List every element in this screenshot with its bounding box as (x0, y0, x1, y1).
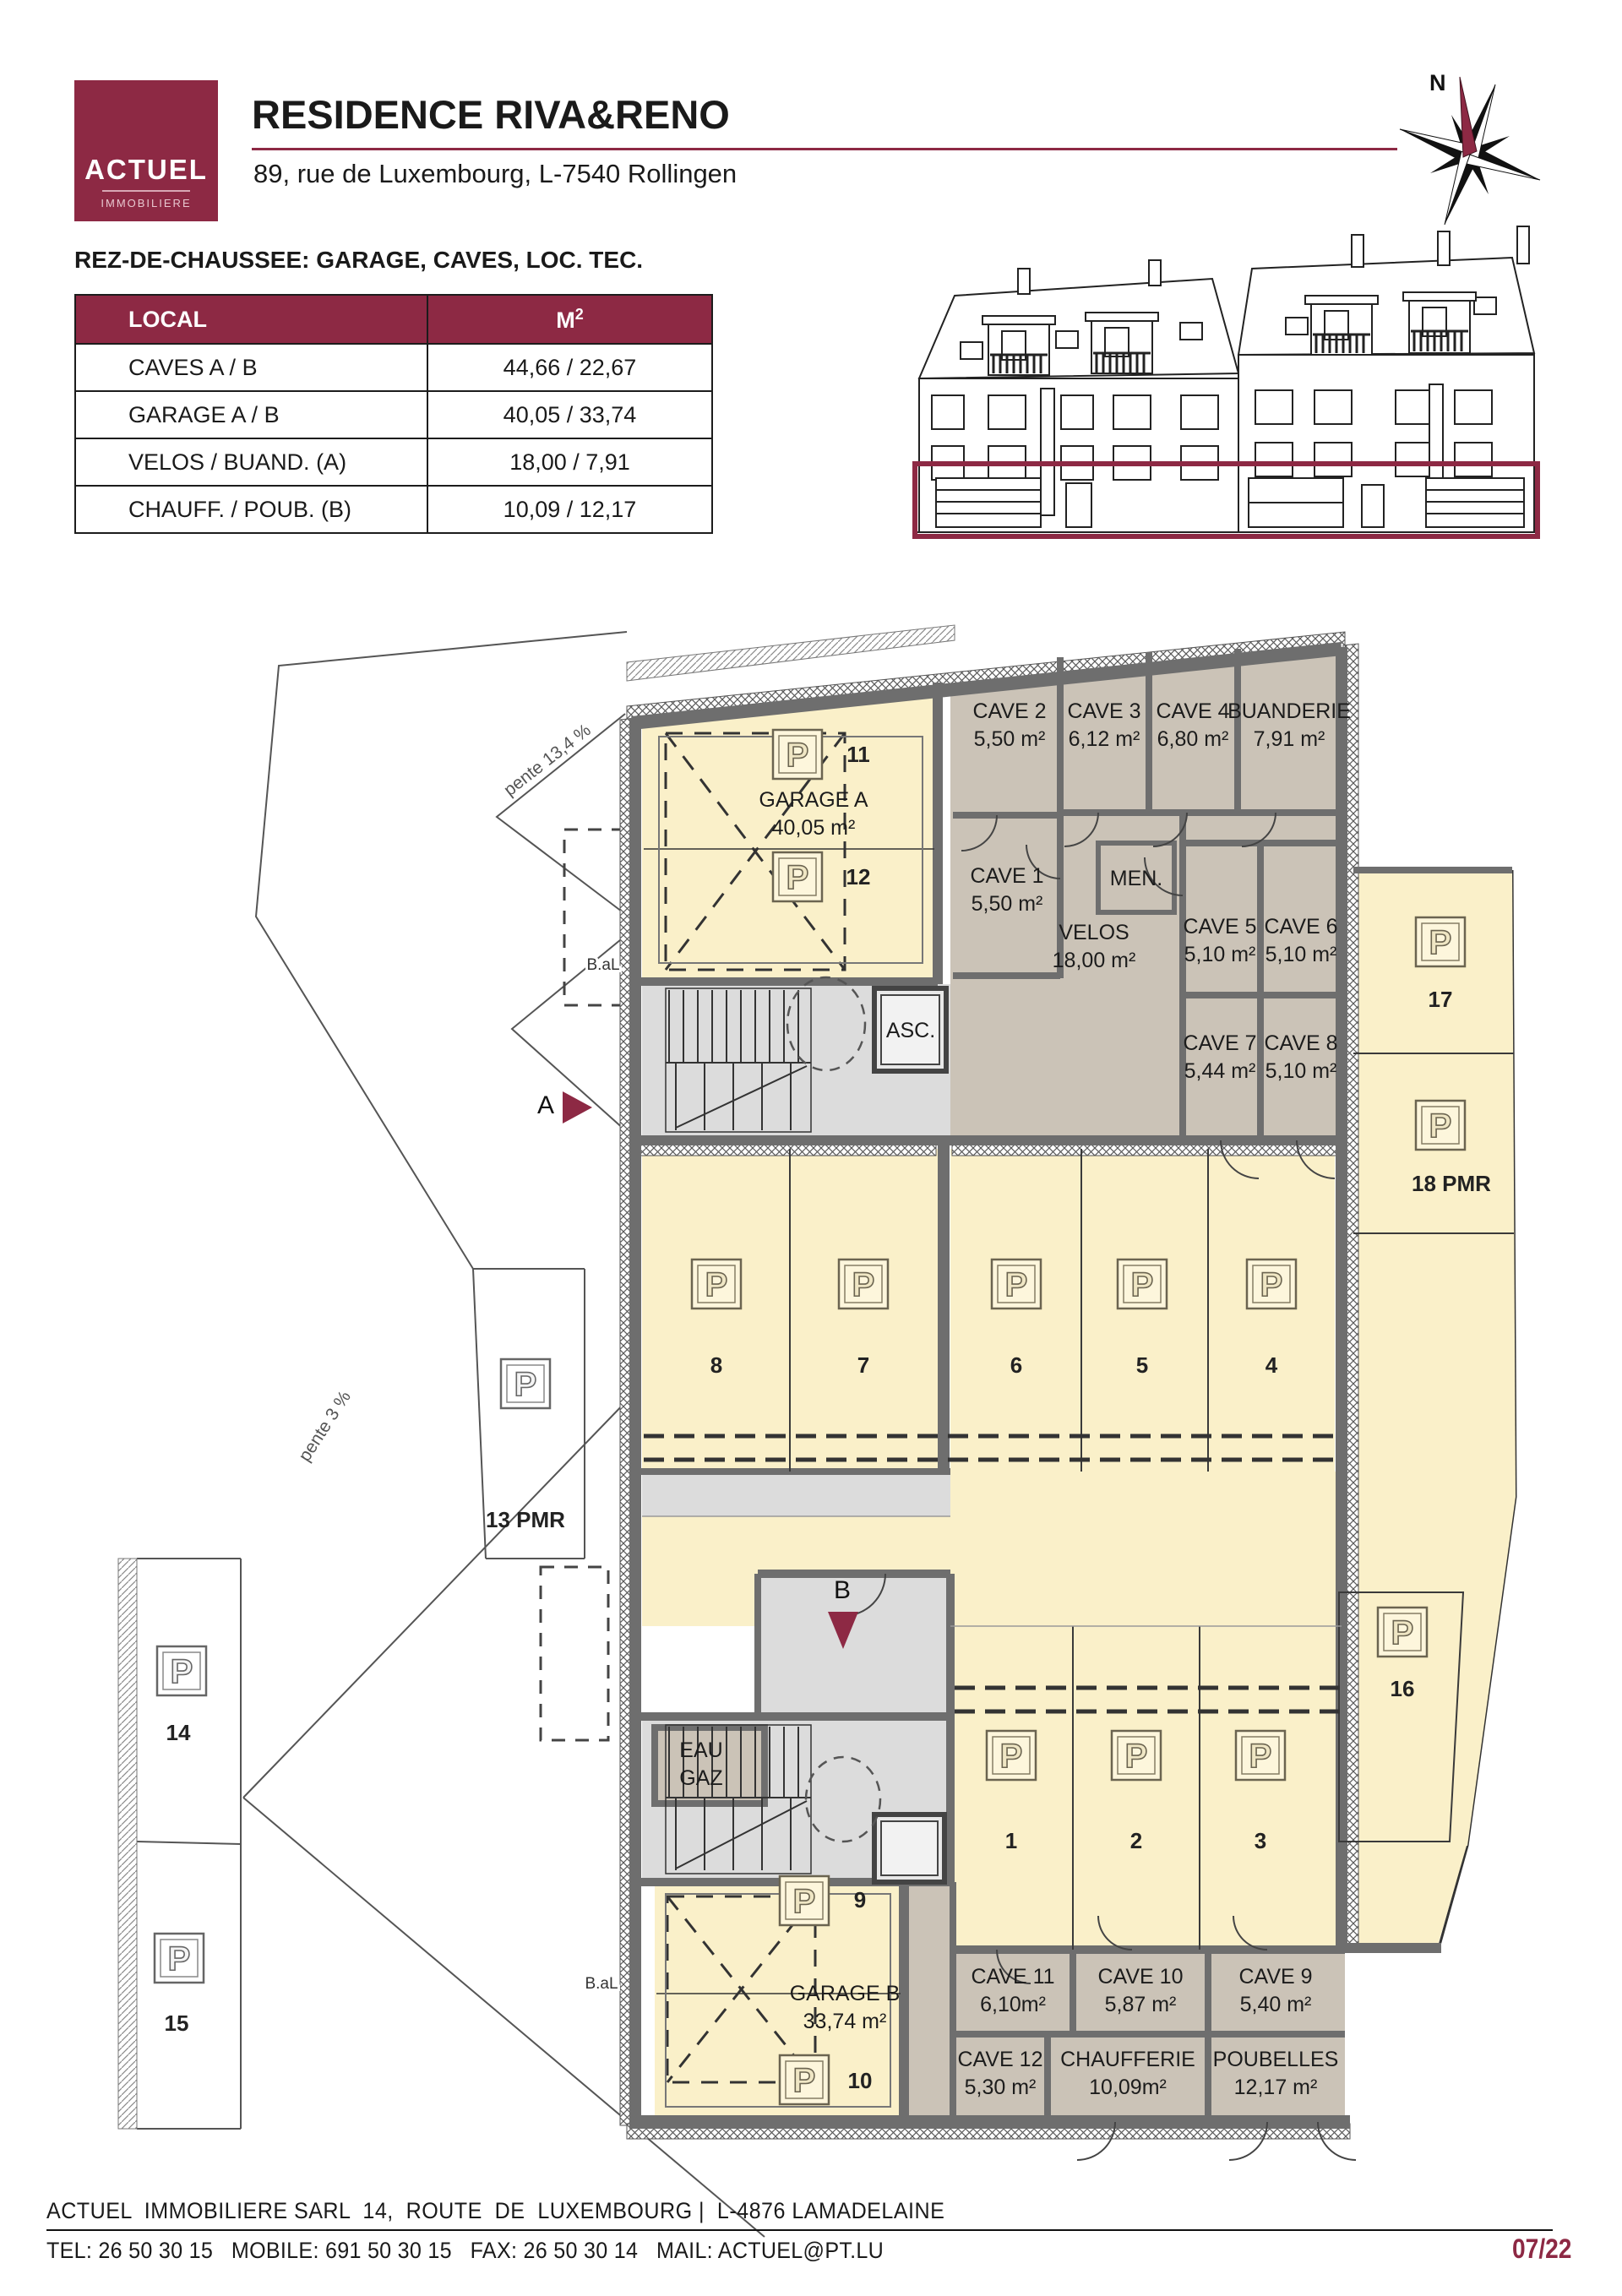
parking-spot-label: 2 (1130, 1828, 1142, 1853)
parking-p-glyph: P (705, 1266, 728, 1303)
room-label: CAVE 7 (1183, 1031, 1256, 1055)
parking-p-glyph: P (1125, 1738, 1148, 1775)
room-label: CAVE 11 (971, 1965, 1054, 1989)
floor-plan: CAVE 25,50 m²CAVE 36,12 m²CAVE 46,80 m²B… (0, 0, 1622, 2296)
parking-spot-label: 18 PMR (1412, 1171, 1491, 1196)
parking-spot-label: 4 (1265, 1352, 1278, 1378)
parking-p-glyph: P (793, 2062, 816, 2099)
room-label: VELOS (1059, 921, 1129, 944)
room-label: 5,50 m² (974, 727, 1046, 751)
room-label: 5,10 m² (1184, 943, 1256, 966)
parking-spot: P15 (155, 1934, 204, 2036)
parking-p-glyph: P (787, 737, 809, 774)
parking-p-glyph: P (1429, 1107, 1452, 1145)
room-label: MEN. (1110, 867, 1163, 890)
room-label: 5,30 m² (965, 2076, 1037, 2099)
parking-spot-label: 3 (1255, 1828, 1266, 1853)
plan-annotations: pente 13,4 %pente 3 %B.aLB.aL (295, 721, 619, 1993)
room-label: 5,87 m² (1105, 1993, 1177, 2016)
room-label: 18,00 m² (1053, 949, 1136, 972)
parking-spot: P13 PMR (486, 1359, 565, 1532)
room-label: ASC. (886, 1019, 935, 1042)
parking-p-glyph: P (514, 1366, 537, 1403)
terrain-hatch (627, 625, 955, 681)
plan-annotation: pente 13,4 % (500, 721, 595, 800)
footer-company-line: ACTUEL IMMOBILIERE SARL 14, ROUTE DE LUX… (46, 2198, 944, 2224)
room-label: CAVE 3 (1067, 699, 1140, 723)
parking-p-glyph: P (1429, 924, 1452, 961)
parking-spot-label: 11 (846, 742, 870, 767)
parking-p-glyph: P (1249, 1738, 1272, 1775)
footer-rule (46, 2229, 1553, 2231)
parking-spot-label: 7 (857, 1352, 869, 1378)
room-label: CAVE 9 (1238, 1965, 1312, 1989)
plan-annotation: B.aL (586, 956, 619, 974)
terrain-hatch-left (118, 1559, 137, 2129)
parking-p-glyph: P (1391, 1614, 1414, 1651)
parking-p-glyph: P (793, 1883, 816, 1920)
parking-p-glyph: P (852, 1266, 875, 1303)
parking-p-glyph: P (168, 1940, 191, 1978)
room-label: EAU (679, 1738, 722, 1762)
plan-annotation: pente 3 % (295, 1388, 355, 1466)
parking-p-glyph: P (787, 859, 809, 896)
room-label: 33,74 m² (803, 2010, 887, 2033)
parking-spot-label: 5 (1136, 1352, 1148, 1378)
room-label: 6,12 m² (1069, 727, 1140, 751)
room-label: 5,10 m² (1265, 1059, 1337, 1083)
parking-spot: P14 (157, 1646, 206, 1745)
room-label: GAZ (679, 1766, 722, 1790)
room-label: CAVE 6 (1264, 915, 1337, 939)
room-label: BUANDERIE (1227, 699, 1351, 723)
room-label: CHAUFFERIE (1060, 2048, 1195, 2071)
brochure-page: ACTUEL IMMOBILIERE RESIDENCE RIVA&RENO 8… (0, 0, 1622, 2296)
room-label: CAVE 4 (1156, 699, 1229, 723)
parking-spot-label: 8 (710, 1352, 722, 1378)
room-label: 5,40 m² (1240, 1993, 1312, 2016)
room-label: 6,10m² (980, 1993, 1046, 2016)
parking-spot-label: 17 (1429, 987, 1453, 1012)
room-label: 7,91 m² (1254, 727, 1325, 751)
parking-p-glyph: P (1131, 1266, 1154, 1303)
room-label: CAVE 8 (1264, 1031, 1337, 1055)
parking-spot-label: 15 (165, 2010, 189, 2036)
room-label: 5,44 m² (1184, 1059, 1256, 1083)
room-label: 12,17 m² (1234, 2076, 1318, 2099)
room-label: GARAGE A (759, 788, 868, 812)
parking-spot-label: 6 (1010, 1352, 1022, 1378)
room-label: 10,09m² (1089, 2076, 1167, 2099)
room-label: CAVE 1 (970, 864, 1043, 888)
room-label: CAVE 12 (958, 2048, 1043, 2071)
page-number: 07/22 (1512, 2233, 1571, 2265)
room-label: 6,80 m² (1157, 727, 1229, 751)
room-label: GARAGE B (790, 1982, 901, 2005)
parking-p-glyph: P (1260, 1266, 1283, 1303)
room-label: CAVE 10 (1098, 1965, 1184, 1989)
parking-spot-label: 10 (848, 2068, 873, 2093)
footer-contact-line: TEL: 26 50 30 15 MOBILE: 691 50 30 15 FA… (46, 2238, 884, 2264)
parking-spot-label: 13 PMR (486, 1507, 565, 1532)
parking-spot-label: 14 (166, 1720, 191, 1745)
parking-p-glyph: P (171, 1653, 193, 1690)
parking-spot-label: 16 (1391, 1676, 1415, 1701)
entrance-marker-label: A (537, 1091, 554, 1119)
parking-spot-label: 1 (1005, 1828, 1017, 1853)
parking-p-glyph: P (1000, 1738, 1023, 1775)
room-label: 5,50 m² (972, 892, 1043, 916)
entrance-marker-label: B (834, 1576, 851, 1604)
room-label: CAVE 2 (972, 699, 1046, 723)
room-label: 40,05 m² (772, 816, 856, 840)
parking-spot-label: 9 (854, 1887, 866, 1912)
parking-p-glyph: P (1005, 1266, 1028, 1303)
room-label: POUBELLES (1213, 2048, 1339, 2071)
room-label: 5,10 m² (1265, 943, 1337, 966)
plan-annotation: B.aL (585, 1975, 618, 1993)
room-label: CAVE 5 (1183, 915, 1256, 939)
parking-spot-label: 12 (846, 864, 871, 890)
